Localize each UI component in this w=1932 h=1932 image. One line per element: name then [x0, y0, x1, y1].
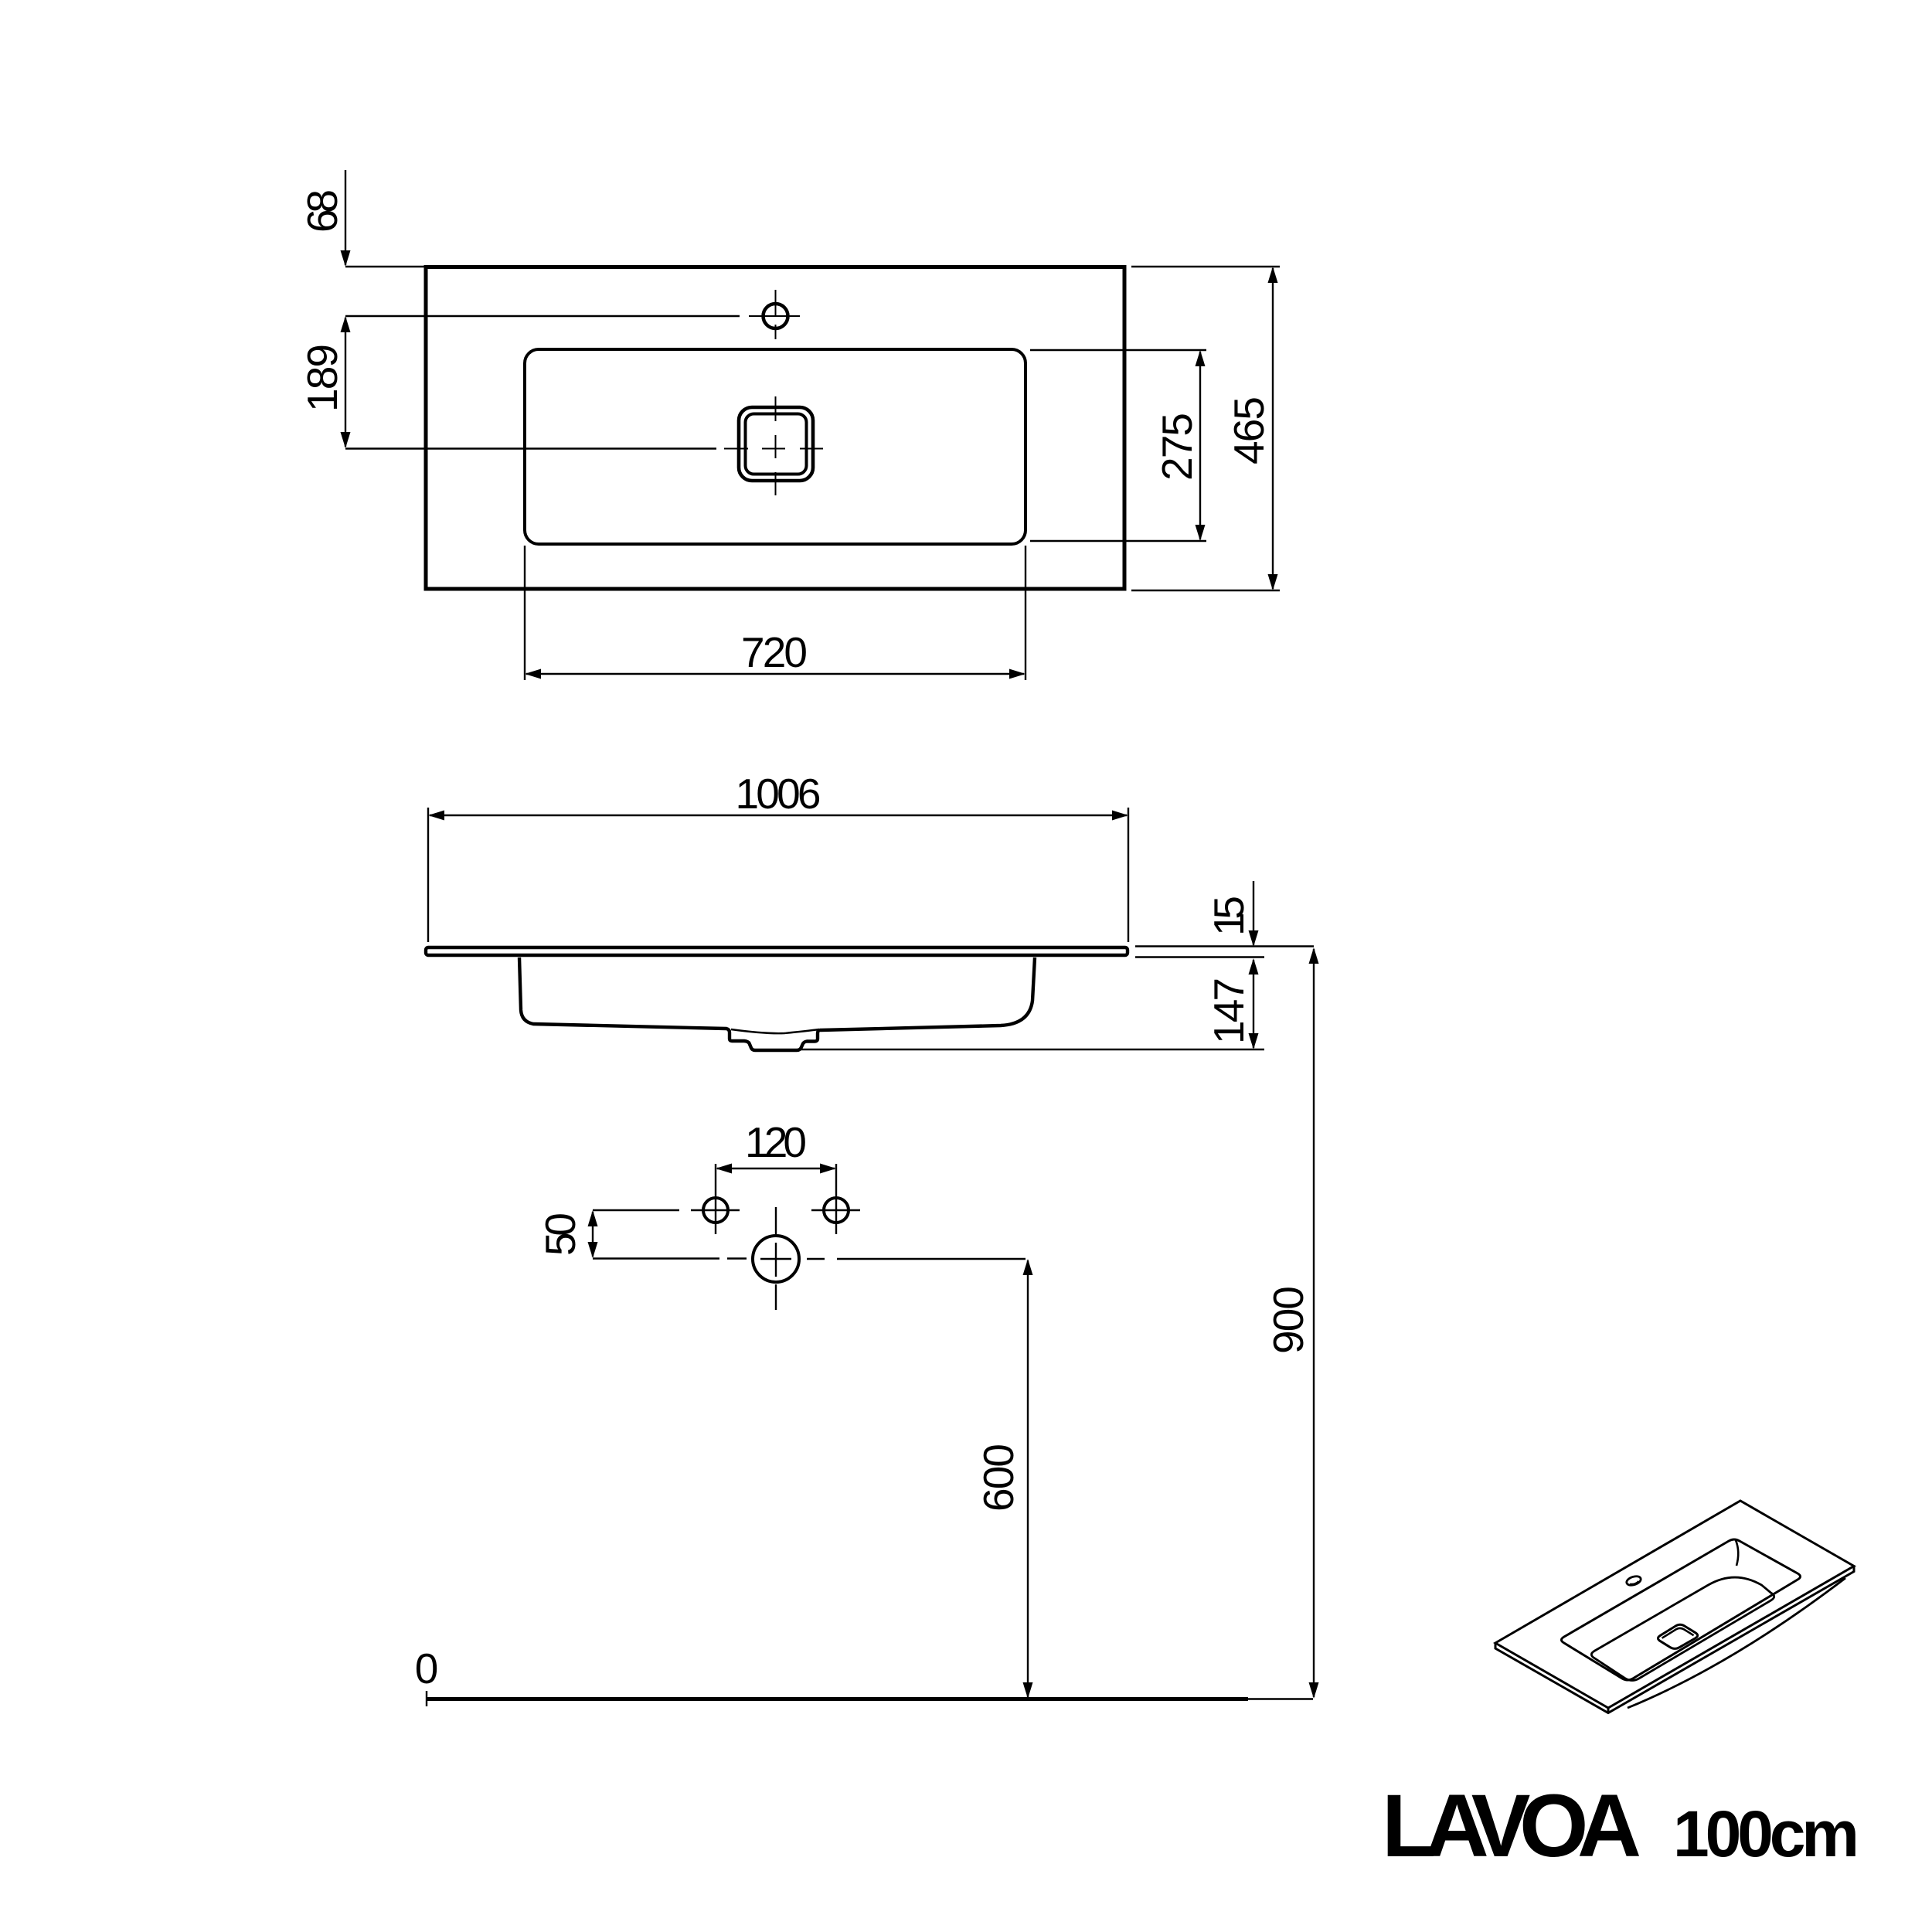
- svg-text:0: 0: [415, 1645, 439, 1692]
- svg-text:100cm: 100cm: [1673, 1798, 1859, 1870]
- svg-text:15: 15: [1205, 896, 1253, 936]
- svg-text:600: 600: [975, 1444, 1022, 1512]
- svg-text:68: 68: [298, 189, 346, 233]
- svg-text:147: 147: [1205, 978, 1253, 1044]
- svg-text:120: 120: [745, 1118, 807, 1166]
- svg-text:720: 720: [741, 628, 808, 676]
- svg-text:275: 275: [1153, 413, 1201, 481]
- svg-text:LAVOA: LAVOA: [1382, 1777, 1641, 1876]
- svg-text:900: 900: [1264, 1286, 1312, 1354]
- svg-text:1006: 1006: [736, 770, 821, 818]
- svg-text:465: 465: [1225, 396, 1273, 464]
- svg-text:50: 50: [536, 1213, 584, 1256]
- svg-text:189: 189: [298, 344, 346, 412]
